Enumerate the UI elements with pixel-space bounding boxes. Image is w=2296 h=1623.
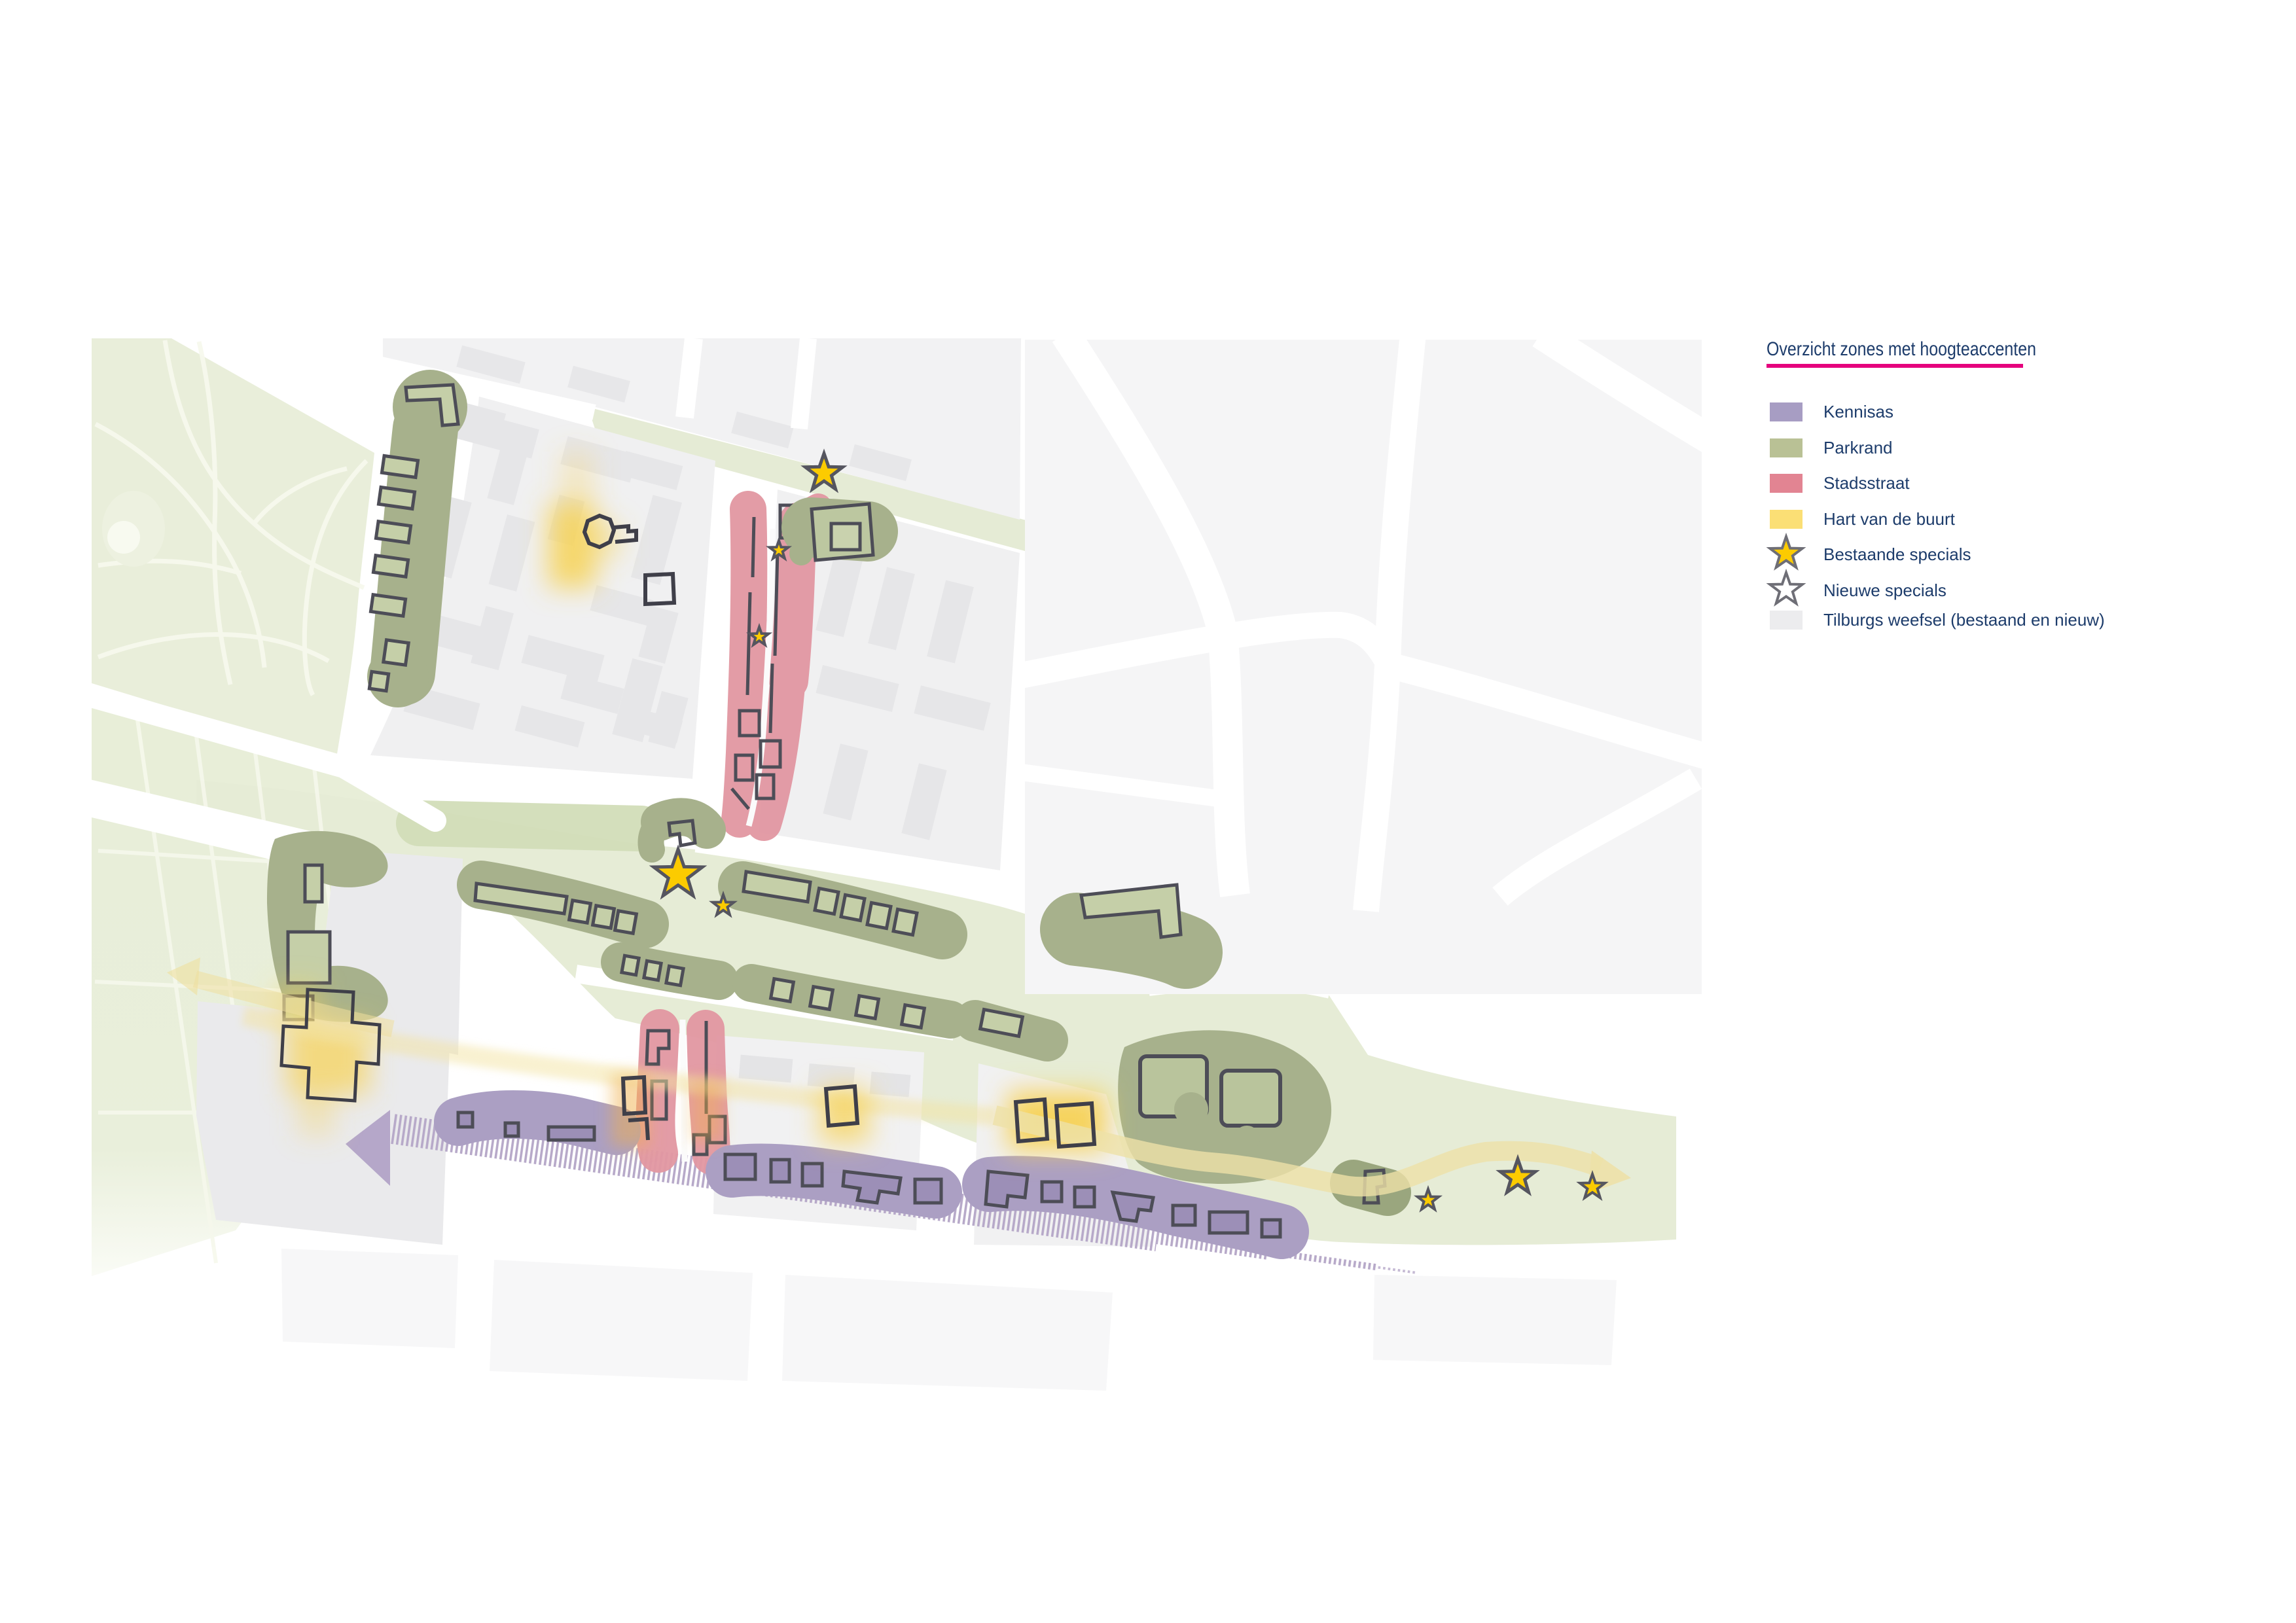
- svg-text:Hart van de buurt: Hart van de buurt: [1823, 509, 1956, 529]
- svg-text:Bestaande specials: Bestaande specials: [1823, 544, 1971, 564]
- svg-text:Parkrand: Parkrand: [1823, 438, 1893, 457]
- svg-text:Stadsstraat: Stadsstraat: [1823, 473, 1910, 493]
- svg-text:Overzicht zones met hoogteacce: Overzicht zones met hoogteaccenten: [1767, 338, 2036, 360]
- svg-text:Nieuwe specials: Nieuwe specials: [1823, 580, 1946, 600]
- svg-text:Tilburgs weefsel (bestaand en: Tilburgs weefsel (bestaand en nieuw): [1823, 610, 2105, 630]
- svg-text:Kennisas: Kennisas: [1823, 402, 1893, 421]
